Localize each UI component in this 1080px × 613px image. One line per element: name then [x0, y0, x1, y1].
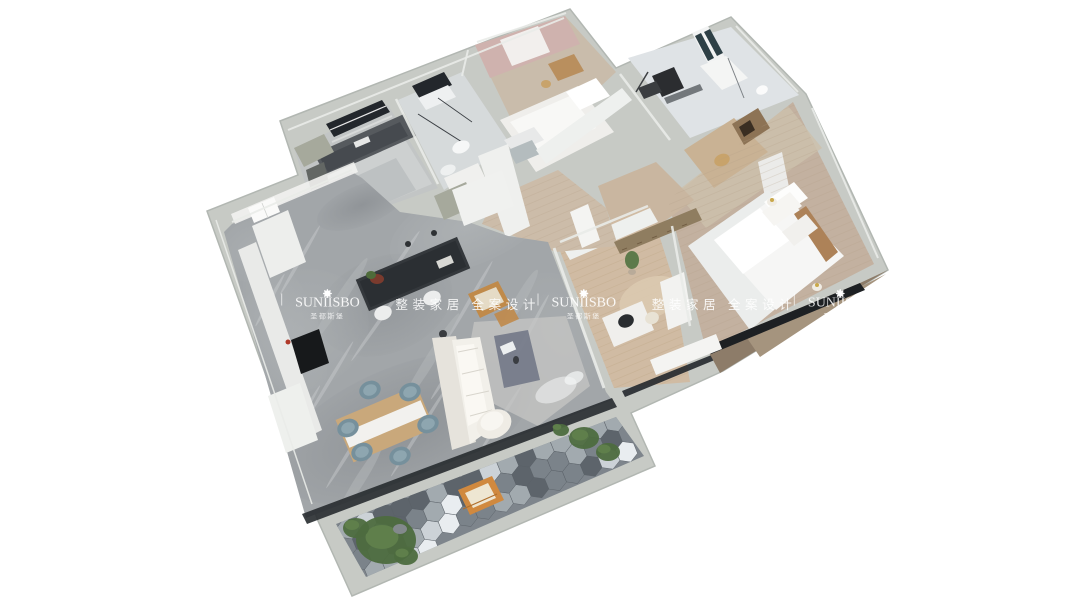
- svg-text:圣都斯堡: 圣都斯堡: [310, 312, 344, 321]
- svg-text:圣都斯堡: 圣都斯堡: [567, 312, 601, 321]
- svg-text:整装家居 全案设计: 整装家居 全案设计: [652, 297, 797, 312]
- svg-text:整装家居 全案设计: 整装家居 全案设计: [395, 297, 540, 312]
- svg-text:圣都斯堡: 圣都斯堡: [823, 312, 857, 321]
- svg-text:SUNIISBO: SUNIISBO: [295, 296, 360, 311]
- svg-text:SUNIISBO: SUNIISBO: [552, 296, 617, 311]
- svg-text:SUNIISBO: SUNIISBO: [808, 296, 873, 311]
